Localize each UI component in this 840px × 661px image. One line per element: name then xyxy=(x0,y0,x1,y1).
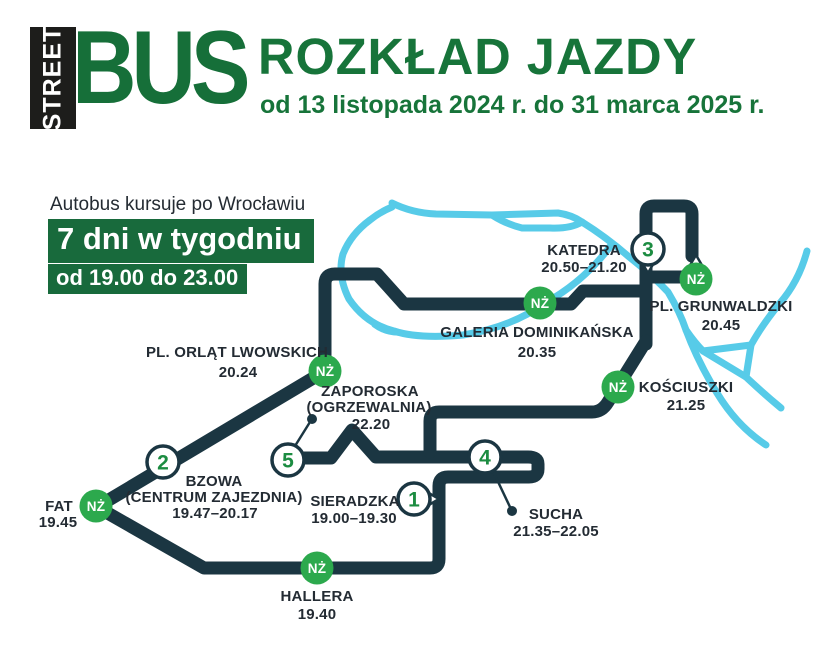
nz-badge-hallera: NŻ xyxy=(301,552,334,585)
stop-name-sucha: SUCHA xyxy=(529,506,583,523)
stop-time-katedra: 20.50–21.20 xyxy=(541,259,627,276)
river-branch-east xyxy=(746,377,781,408)
stop-name-kosciuszki: KOŚCIUSZKI xyxy=(639,378,734,396)
nz-badge-label: NŻ xyxy=(687,272,705,287)
stop-time-kosciuszki: 21.25 xyxy=(667,397,706,414)
stop-time-zaporoska: 22.20 xyxy=(352,416,391,433)
stop-marker-number: 2 xyxy=(157,452,169,475)
route-map: NŻ NŻ NŻ NŻ NŻ NŻ 1 xyxy=(0,0,840,661)
stop-name-zaporoska: ZAPOROSKA xyxy=(321,383,419,400)
stop-name-sieradzka: SIERADZKA xyxy=(310,493,399,510)
stop-marker-4-sucha: 4 xyxy=(469,441,501,473)
stop-name2-zaporoska: (OGRZEWALNIA) xyxy=(306,399,431,416)
stop-marker-2-bzowa: 2 xyxy=(147,446,179,478)
nz-badge-fat: NŻ xyxy=(80,490,113,523)
stop-marker-5-zaporoska: 5 xyxy=(272,444,304,476)
stop-time-grunwaldzki: 20.45 xyxy=(702,317,741,334)
nz-badge-grunwaldzki: NŻ xyxy=(680,255,713,296)
nz-badge-galeria: NŻ xyxy=(524,287,557,320)
stop-name-bzowa: BZOWA xyxy=(186,473,243,490)
stop-name-katedra: KATEDRA xyxy=(547,242,621,259)
stop-time-hallera: 19.40 xyxy=(298,606,337,623)
stop-time-sucha: 21.35–22.05 xyxy=(513,523,599,540)
stop-time-galeria: 20.35 xyxy=(518,344,557,361)
stop-name2-bzowa: (CENTRUM ZAJEZDNIA) xyxy=(125,489,302,506)
stop-name-grunwaldzki: PL. GRUNWALDZKI xyxy=(650,298,793,315)
stop-marker-number: 1 xyxy=(408,489,420,512)
stop-name-fat: FAT xyxy=(45,498,73,515)
stop-time-fat: 19.45 xyxy=(39,514,78,531)
stop-marker-number: 3 xyxy=(642,239,654,262)
stop-name-hallera: HALLERA xyxy=(280,588,353,605)
river-main-west xyxy=(392,203,492,215)
stop-marker-number: 4 xyxy=(479,447,491,470)
stop-name-galeria: GALERIA DOMINIKAŃSKA xyxy=(440,324,633,341)
nz-badge-label: NŻ xyxy=(87,499,105,514)
stop-time-sieradzka: 19.00–19.30 xyxy=(311,510,397,527)
nz-badge-kosciuszki: NŻ xyxy=(602,371,635,404)
leader-zaporoska xyxy=(295,422,310,446)
river-triangle-junction xyxy=(703,345,751,377)
nz-badge-label: NŻ xyxy=(316,364,334,379)
leader-dot-sucha xyxy=(507,506,517,516)
stop-name-orlat: PL. ORLĄT LWOWSKICH xyxy=(146,344,328,361)
stop-time-bzowa: 19.47–20.17 xyxy=(172,505,258,522)
stop-time-orlat: 20.24 xyxy=(219,364,258,381)
nz-badge-label: NŻ xyxy=(531,296,549,311)
stop-marker-number: 5 xyxy=(282,450,294,473)
nz-badge-label: NŻ xyxy=(308,561,326,576)
nz-badge-label: NŻ xyxy=(609,380,627,395)
